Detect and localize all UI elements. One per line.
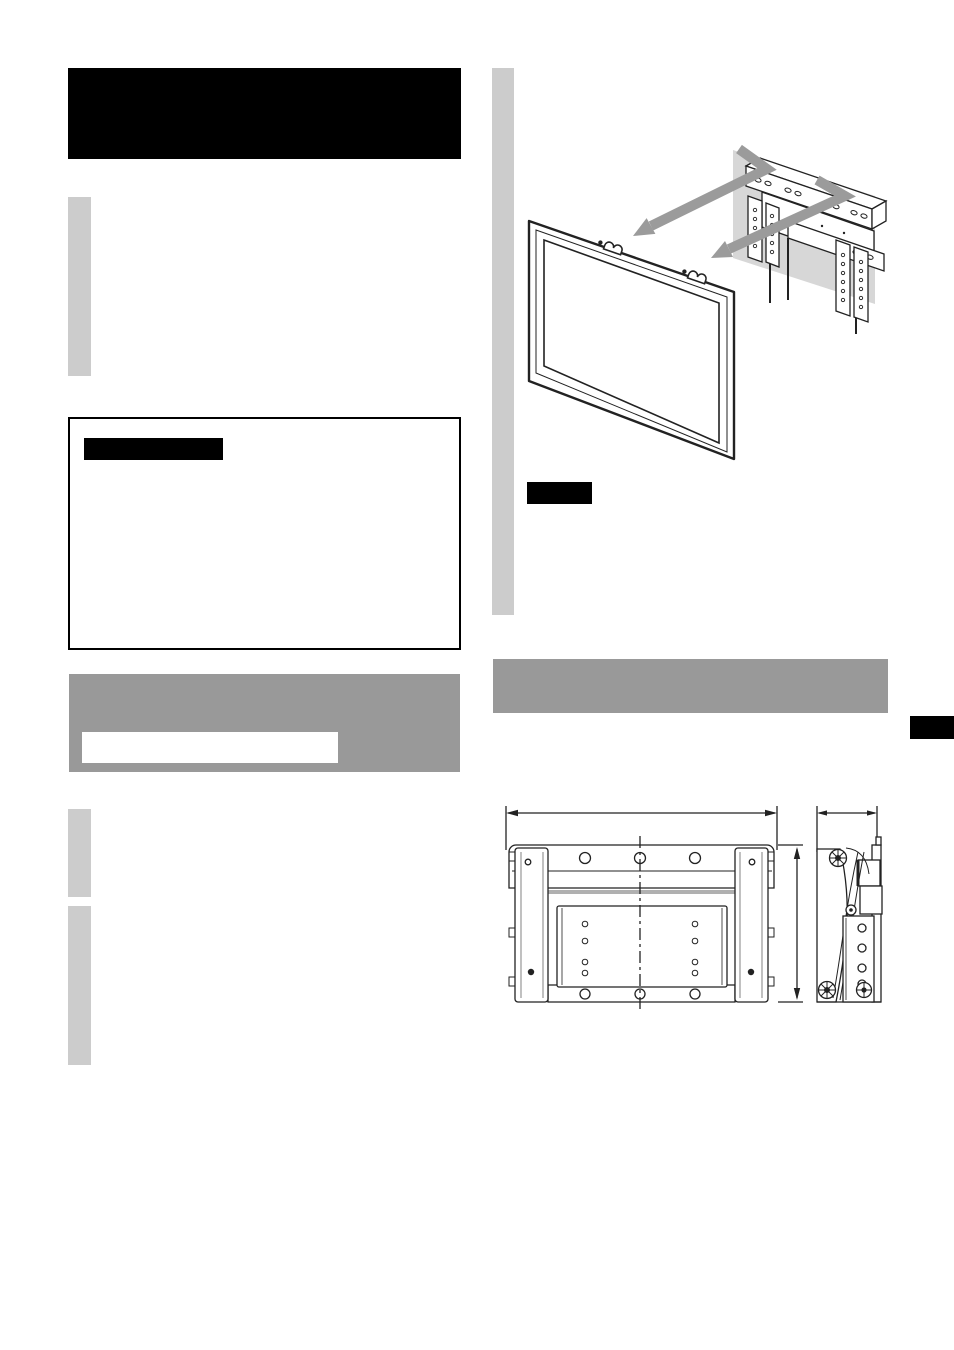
figure-note-label bbox=[527, 482, 592, 504]
width-dimension-line bbox=[506, 806, 777, 850]
banner-inset-box bbox=[82, 732, 338, 763]
alignment-arrow bbox=[633, 149, 767, 236]
knurled-screw-icon bbox=[830, 850, 847, 867]
side-view bbox=[817, 806, 882, 1002]
warning-box bbox=[68, 417, 461, 650]
paragraph-bar-2 bbox=[68, 906, 91, 1065]
manual-page bbox=[0, 0, 954, 1350]
right-column-bar bbox=[492, 68, 514, 615]
wall-mount-bracket bbox=[746, 158, 886, 334]
section-banner-right bbox=[493, 659, 888, 713]
dimension-diagram bbox=[0, 780, 954, 1080]
warning-heading-bar bbox=[84, 438, 223, 460]
knurled-screw-icon bbox=[857, 983, 872, 998]
title-block bbox=[68, 68, 461, 159]
depth-dimension-line bbox=[817, 806, 877, 852]
paragraph-bar-1 bbox=[68, 809, 91, 897]
page-edge-tab bbox=[910, 716, 954, 739]
knurled-screw-icon bbox=[846, 905, 856, 915]
front-view bbox=[506, 806, 803, 1012]
tv-panel bbox=[529, 221, 734, 459]
gray-banner-left bbox=[69, 674, 460, 772]
hook-icon bbox=[597, 239, 624, 255]
knurled-screw-icon bbox=[819, 982, 836, 999]
mounting-holes-bottom-row bbox=[580, 989, 700, 999]
hook-icon bbox=[681, 268, 708, 284]
mounting-holes-top-row bbox=[525, 853, 755, 865]
tv-screen bbox=[544, 240, 719, 443]
alignment-arrow bbox=[711, 180, 845, 258]
height-dimension-line bbox=[778, 845, 803, 1002]
wall-patch bbox=[733, 150, 875, 304]
intro-paragraph-bar bbox=[68, 197, 91, 376]
center-plate-holes bbox=[582, 921, 698, 976]
